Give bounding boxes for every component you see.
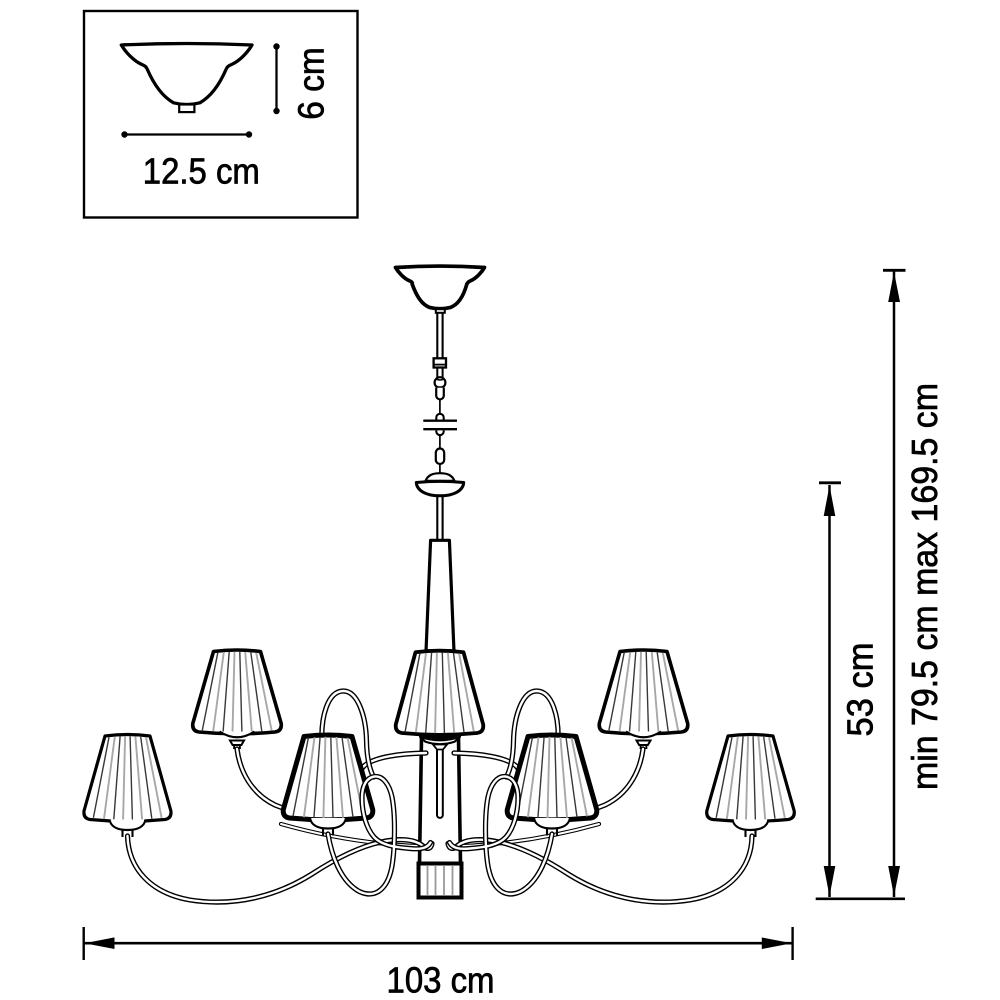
svg-text:53 cm: 53 cm: [840, 643, 881, 737]
svg-text:12.5 cm: 12.5 cm: [143, 151, 260, 192]
svg-text:min 79.5 cm max 169.5 cm: min 79.5 cm max 169.5 cm: [904, 383, 945, 790]
svg-text:103 cm: 103 cm: [387, 960, 495, 1000]
svg-text:6 cm: 6 cm: [291, 47, 332, 120]
